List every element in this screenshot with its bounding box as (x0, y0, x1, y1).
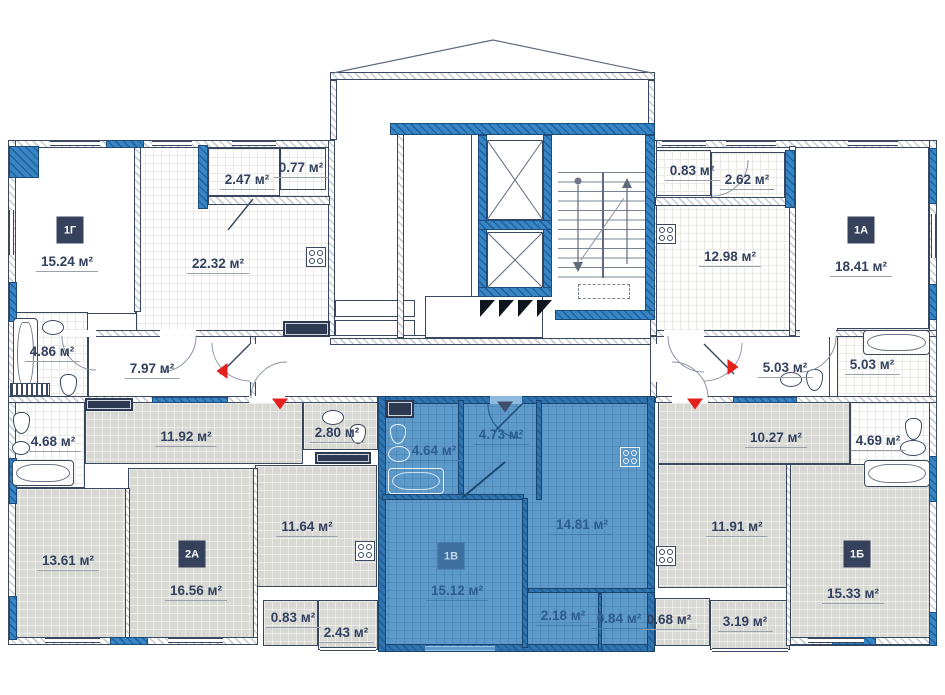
entry-arrow-icon (217, 363, 228, 379)
door-opening (651, 344, 657, 382)
bathtub-icon (388, 468, 444, 494)
kitchen-counter-icon (85, 398, 133, 411)
wall (786, 464, 791, 646)
room-area-label: 4.64 м² (407, 443, 462, 461)
door-opening (664, 330, 704, 337)
room-1a-kitchen (655, 200, 795, 336)
bathtub-icon (12, 460, 74, 486)
window (152, 141, 192, 146)
kitchen-counter-icon (315, 452, 371, 464)
room-area-label: 2.43 м² (319, 625, 374, 643)
room-area-label: 18.41 м² (830, 259, 892, 277)
door-opening (62, 330, 96, 337)
wall (655, 197, 795, 206)
room-area-label: 2.47 м² (220, 172, 275, 190)
entry-arrow-icon (497, 402, 513, 413)
entry-arrow-icon (687, 399, 703, 410)
room-area-label: 3.19 м² (718, 614, 773, 632)
stove-icon (656, 546, 676, 566)
wall (208, 196, 330, 205)
unit-1v-wall (378, 396, 386, 652)
bathtub-icon (864, 460, 930, 487)
window-segment (929, 612, 937, 646)
window-segment (929, 456, 937, 502)
window-segment (929, 284, 937, 320)
room-area-label: 0.83 м² (266, 610, 321, 628)
balcony-glazing (320, 647, 376, 651)
stove-icon (656, 224, 676, 244)
room-area-label: 2.62 м² (720, 172, 775, 190)
core-vent-room (425, 296, 543, 338)
room-area-label: 4.69 м² (851, 433, 906, 451)
unit-1v-partition (382, 494, 524, 500)
window (662, 141, 706, 146)
room-area-label: 10.27 м² (745, 430, 807, 448)
door-opening (800, 330, 836, 337)
window-segment (9, 146, 39, 178)
stair-wall (555, 310, 655, 320)
room-area-label: 15.24 м² (36, 254, 98, 272)
unit-1v-wall (378, 644, 655, 652)
window (726, 141, 776, 146)
unit-badge[interactable]: 1В (438, 543, 465, 570)
room-area-label: 11.91 м² (706, 519, 767, 537)
room-area-label: 4.86 м² (25, 344, 80, 362)
door-opening (160, 330, 196, 337)
elevator-wall (390, 123, 655, 135)
entry-arrow-icon (728, 359, 739, 375)
radiator-icon (10, 383, 50, 396)
unit-1v-partition (536, 400, 542, 500)
room-area-label: 2.80 м² (310, 425, 365, 443)
unit-1v-partition (522, 498, 528, 648)
stove-icon (355, 541, 375, 561)
window (168, 638, 223, 643)
unit-1v-partition (528, 588, 655, 593)
room-area-label: 5.03 м² (758, 360, 813, 378)
elevator-wall (478, 135, 487, 297)
window-segment (9, 282, 17, 322)
room-area-label: 4.68 м² (26, 434, 81, 452)
wall (253, 468, 258, 638)
window (848, 141, 898, 146)
room-area-label: 4.73 м² (474, 427, 529, 445)
window-segment (929, 148, 937, 204)
wall (330, 72, 655, 80)
window (50, 141, 100, 146)
staircase-landing (578, 284, 630, 299)
room-area-label: 11.92 м² (155, 429, 216, 447)
room-area-label: 15.33 м² (822, 586, 884, 604)
wall-segment (198, 145, 208, 209)
room-area-label: 15.12 м² (426, 583, 488, 601)
washing-machine-icon (283, 321, 330, 337)
wall (330, 80, 337, 140)
wall-segment (785, 150, 795, 208)
sink-icon (42, 320, 64, 335)
window-segment (110, 637, 148, 645)
room-area-label: 0.68 м² (642, 612, 697, 630)
elevator-shaft (487, 140, 543, 220)
room-area-label: 14.81 м² (551, 517, 613, 535)
unit-badge[interactable]: 1Г (57, 217, 84, 244)
wall (125, 488, 130, 638)
unit-badge[interactable]: 2А (179, 541, 206, 568)
elevator-wall (478, 220, 552, 230)
unit-badge[interactable]: 1Б (844, 541, 871, 568)
window (808, 638, 864, 643)
unit-badge[interactable]: 1А (848, 217, 875, 244)
floor-plan: 1Г15.24 м²22.32 м²2.47 м²0.77 м²4.86 м²7… (0, 0, 945, 695)
stove-icon (620, 447, 640, 467)
room-area-label: 2.18 м² (536, 608, 591, 626)
room-area-label: 12.98 м² (699, 249, 761, 267)
window (45, 638, 100, 643)
staircase-divider (602, 172, 604, 278)
elevator-shaft (487, 232, 543, 288)
room-area-label: 0.83 м² (665, 163, 720, 181)
bathtub-icon (863, 330, 930, 355)
window (425, 646, 495, 651)
wall (397, 128, 404, 338)
window-segment (9, 596, 17, 640)
window-segment (106, 140, 144, 148)
wall (330, 338, 655, 345)
elevator-wall (478, 287, 552, 297)
stair-wall (645, 135, 655, 320)
window (931, 214, 936, 258)
wall-segment (152, 397, 228, 403)
room-area-label: 5.03 м² (845, 357, 900, 375)
stove-icon (306, 247, 326, 267)
room-area-label: 0.84 м² (592, 611, 647, 629)
door-opening (250, 344, 256, 382)
wall (134, 146, 141, 312)
balcony-glazing (712, 648, 788, 652)
sink-icon (322, 410, 344, 425)
room-area-label: 16.56 м² (165, 583, 227, 601)
window (9, 210, 14, 255)
room-area-label: 22.32 м² (187, 256, 249, 274)
room-area-label: 7.97 м² (125, 361, 180, 379)
wall (328, 140, 335, 336)
elevator-wall (543, 135, 552, 297)
wall-segment (733, 397, 797, 403)
washing-machine-icon (386, 400, 414, 418)
room-area-label: 11.64 м² (276, 519, 337, 537)
room-area-label: 13.61 м² (37, 553, 99, 571)
room-area-label: 0.77 м² (274, 160, 329, 178)
entry-arrow-icon (272, 399, 288, 410)
window (232, 141, 276, 146)
